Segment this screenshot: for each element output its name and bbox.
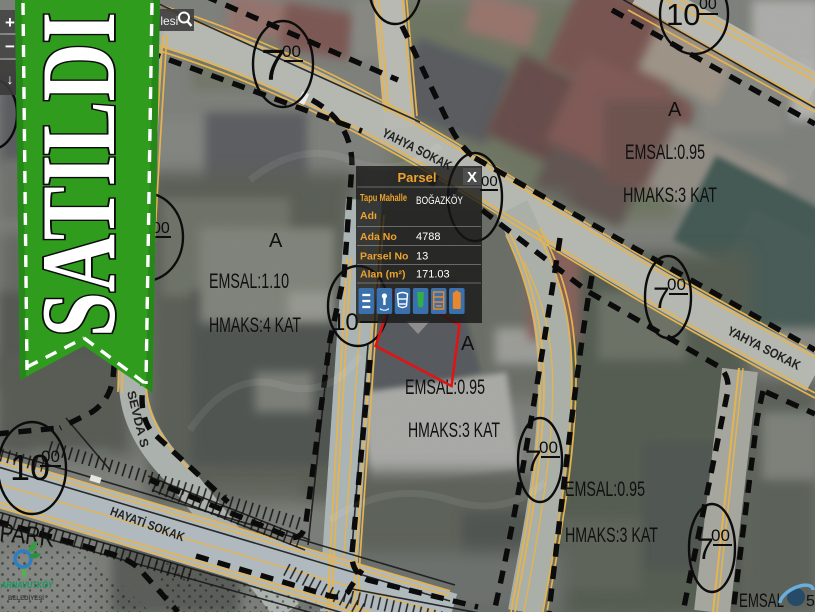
svg-text:ARNAVUTKÖY: ARNAVUTKÖY bbox=[0, 580, 54, 591]
svg-text:Parsel: Parsel bbox=[397, 170, 436, 185]
svg-text:00: 00 bbox=[667, 275, 686, 294]
svg-text:HMAKS:3 KAT: HMAKS:3 KAT bbox=[623, 184, 717, 207]
svg-text:EMSAL: EMSAL bbox=[739, 591, 784, 612]
svg-text:+: + bbox=[5, 13, 15, 32]
svg-text:A: A bbox=[269, 230, 283, 252]
svg-text:00: 00 bbox=[711, 526, 730, 545]
svg-text:HMAKS:3 KAT: HMAKS:3 KAT bbox=[565, 524, 658, 547]
svg-text:Tapu Mahalle: Tapu Mahalle bbox=[360, 192, 407, 204]
svg-text:00: 00 bbox=[481, 173, 498, 190]
svg-text:BOĞAZKÖY: BOĞAZKÖY bbox=[416, 194, 463, 207]
svg-text:5: 5 bbox=[806, 593, 815, 610]
svg-text:HMAKS:3 KAT: HMAKS:3 KAT bbox=[408, 419, 500, 442]
svg-text:10: 10 bbox=[666, 0, 700, 32]
svg-text:EMSAL:0.95: EMSAL:0.95 bbox=[565, 478, 645, 501]
svg-text:13: 13 bbox=[416, 251, 428, 263]
svg-text:Alan (m²): Alan (m²) bbox=[360, 269, 406, 281]
svg-text:00: 00 bbox=[539, 438, 558, 457]
svg-text:HMAKS:4 KAT: HMAKS:4 KAT bbox=[209, 314, 301, 337]
svg-text:10: 10 bbox=[332, 309, 359, 336]
svg-text:A: A bbox=[668, 99, 682, 121]
svg-text:SATILDI: SATILDI bbox=[21, 12, 137, 337]
svg-text:PARK: PARK bbox=[0, 517, 56, 553]
svg-text:EMSAL:0.95: EMSAL:0.95 bbox=[405, 376, 485, 399]
svg-text:00: 00 bbox=[41, 447, 60, 466]
svg-text:BELEDİYESİ: BELEDİYESİ bbox=[8, 595, 44, 602]
svg-text:00: 00 bbox=[282, 42, 301, 61]
svg-text:A: A bbox=[461, 333, 475, 355]
svg-text:Adı: Adı bbox=[360, 210, 377, 222]
svg-text:EMSAL:1.10: EMSAL:1.10 bbox=[209, 270, 289, 293]
svg-text:↓: ↓ bbox=[7, 71, 14, 87]
svg-text:171.03: 171.03 bbox=[416, 269, 450, 281]
svg-text:00: 00 bbox=[699, 0, 717, 13]
svg-text:−: − bbox=[5, 37, 15, 56]
svg-text:EMSAL:0.95: EMSAL:0.95 bbox=[625, 141, 705, 164]
svg-text:X: X bbox=[467, 169, 477, 186]
svg-text:Parsel No: Parsel No bbox=[360, 251, 408, 263]
svg-text:Ada No: Ada No bbox=[360, 231, 397, 243]
svg-text:4788: 4788 bbox=[416, 231, 440, 243]
